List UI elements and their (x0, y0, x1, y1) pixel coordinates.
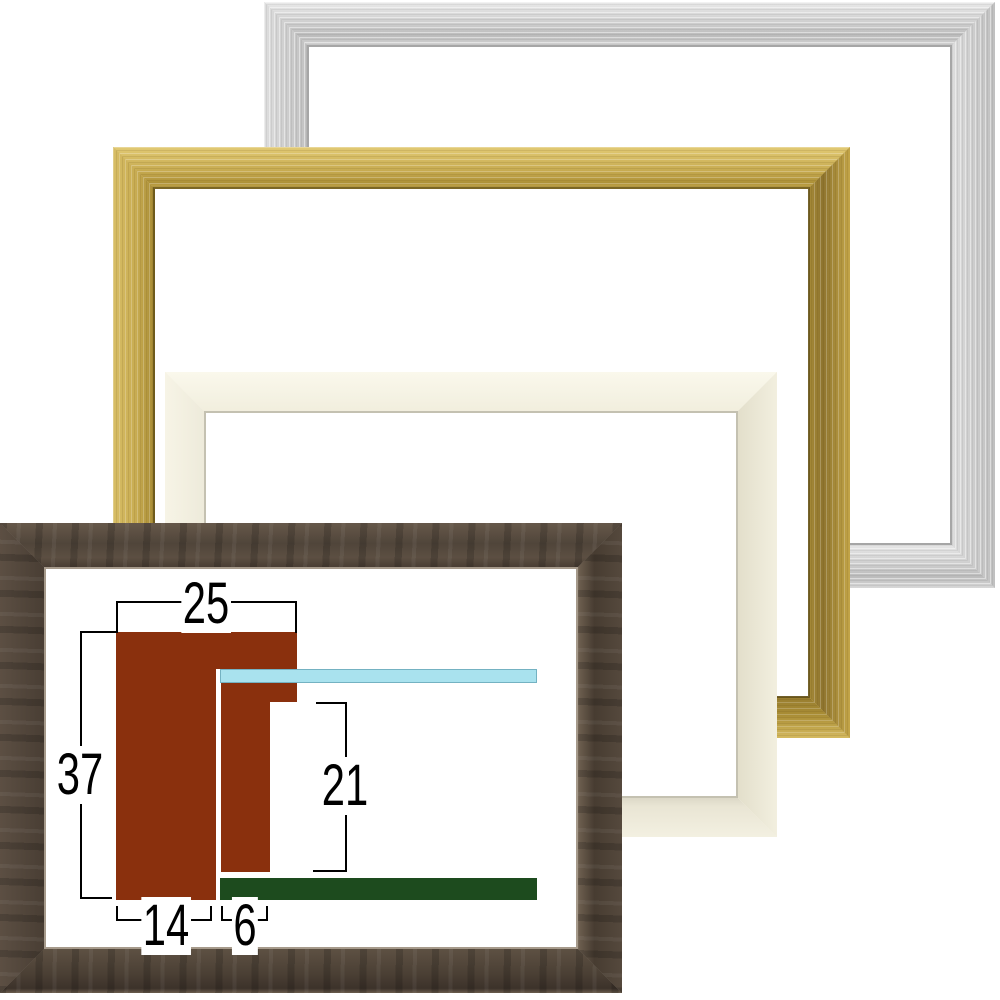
dim-face-width-tick-left (116, 601, 118, 633)
dim-base-width-tick-right (210, 906, 212, 921)
dim-label-total-height: 37 (55, 746, 104, 804)
dim-label-lip-width: 6 (232, 897, 258, 955)
dim-lip-width-tick-right (266, 906, 268, 921)
product-image: 25 37 21 14 6 (0, 0, 1000, 1000)
glass-bar (220, 669, 537, 683)
dim-label-base-width: 14 (141, 897, 190, 955)
cream-frame-top-bar (165, 372, 777, 413)
dim-face-width-tick-right (295, 601, 297, 633)
gold-frame-right-bar (808, 147, 850, 738)
dim-total-height-tick-bottom (80, 897, 112, 899)
dim-base-width-tick-left (116, 906, 118, 921)
moulding-rabbet-lip-shape (221, 683, 297, 872)
dim-inner-depth-tick-bottom (313, 870, 347, 872)
dark-brown-frame: 25 37 21 14 6 (0, 523, 622, 993)
dim-label-face-width: 25 (181, 575, 230, 633)
dim-total-height-tick-top (80, 631, 117, 633)
dim-label-inner-depth: 21 (320, 757, 369, 815)
dim-lip-width-tick-left (221, 906, 223, 921)
silver-frame-top-bar (264, 2, 995, 47)
cross-section-diagram: 25 37 21 14 6 (0, 523, 622, 993)
cream-frame-right-bar (736, 372, 777, 837)
backboard-bar (220, 878, 537, 900)
gold-frame-top-bar (113, 147, 850, 189)
dim-inner-depth-tick-top (316, 702, 347, 704)
silver-frame-right-bar (950, 2, 995, 588)
